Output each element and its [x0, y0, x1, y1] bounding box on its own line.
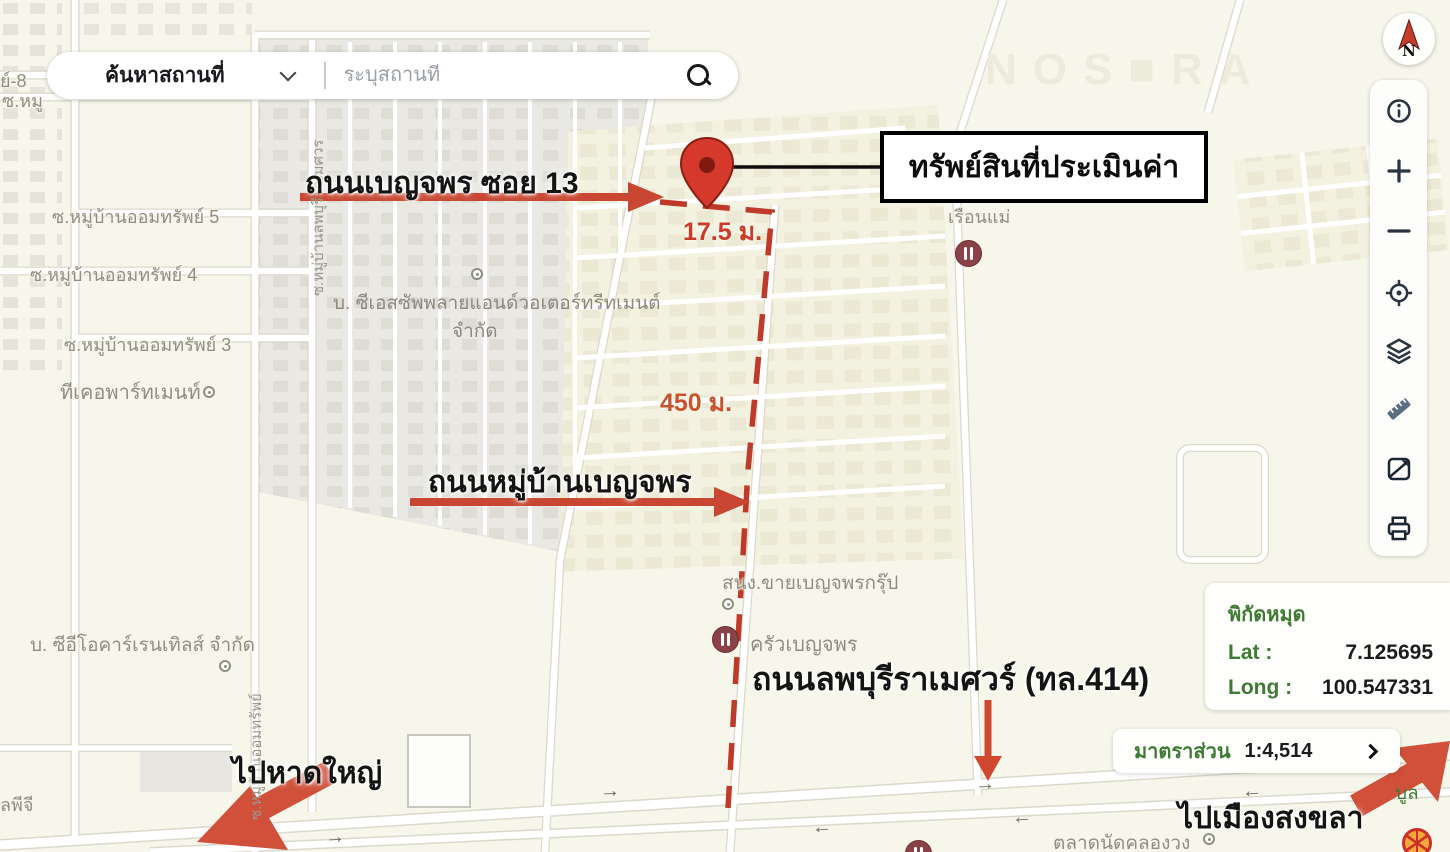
map-label-soi-omsap5: ซ.หมู่บ้านออมทรัพย์ 5: [52, 202, 219, 231]
coordinates-title: พิกัดหมุด: [1228, 598, 1450, 630]
info-icon: [1385, 97, 1413, 125]
map-blocks-topleft: [82, 0, 252, 42]
map-label-cs-supply: บ. ซีเอสซัพพลายแอนด์วอเตอร์ทรีทเมนต์: [333, 288, 661, 318]
nostra-watermark: NOS■RA: [985, 45, 1266, 95]
oneway-arrow-icon: [974, 772, 995, 796]
oneway-arrow-icon: [1011, 805, 1032, 829]
map-label-soi-omsap3: ซ.หมู่บ้านออมทรัพย์ 3: [64, 330, 231, 359]
annotation-distance-17-5: 17.5 ม.: [683, 212, 762, 252]
gas-station-icon: [1402, 828, 1432, 852]
layers-icon: [1384, 336, 1414, 366]
annotation-to-hatyai: ไปหาดใหญ่: [232, 750, 382, 797]
long-value: 100.547331: [1322, 676, 1433, 700]
info-button[interactable]: [1382, 94, 1416, 128]
map-label-partial-lpg: ลพีจี: [0, 790, 33, 819]
building-small: [140, 752, 232, 792]
chevron-down-icon[interactable]: [279, 64, 296, 81]
lat-label: Lat :: [1228, 641, 1272, 665]
annotation-road-highway: ถนนลพบุรีราเมศวร์ (ทล.414): [752, 654, 1149, 705]
map-blocks-left: [0, 0, 62, 370]
lat-row: Lat : 7.125695: [1228, 641, 1433, 665]
annotation-distance-450: 450 ม.: [660, 383, 732, 423]
minus-icon: [1384, 216, 1414, 246]
coordinates-panel: พิกัดหมุด Lat : 7.125695 Long : 100.5473…: [1205, 583, 1450, 710]
oneway-arrow-icon: [599, 779, 620, 803]
long-label: Long :: [1228, 676, 1292, 700]
ruler-icon: [1383, 393, 1415, 425]
search-category-dropdown[interactable]: ค้นหาสถานที่: [105, 59, 225, 92]
plus-icon: [1384, 156, 1414, 186]
annotation-road-village: ถนนหมู่บ้านเบญจพร: [428, 459, 691, 506]
map-label-ruen-mae: เรือนแม่: [948, 202, 1010, 231]
search-divider: [324, 62, 326, 89]
map-canvas[interactable]: [0, 0, 1450, 852]
crosshair-icon: [1384, 278, 1414, 308]
property-callout-box: ทรัพย์สินที่ประเมินค่า: [880, 131, 1208, 203]
basemap-button[interactable]: [1382, 452, 1416, 486]
map-label-soi-omsap4: ซ.หมู่บ้านออมทรัพย์ 4: [30, 260, 197, 289]
chevron-right-icon[interactable]: [1363, 743, 1379, 759]
scale-value: 1:4,514: [1244, 740, 1312, 763]
annotation-road-soi13: ถนนเบญจพร ซอย 13: [305, 160, 579, 207]
compass-north-letter: N: [1402, 42, 1416, 60]
basemap-icon: [1384, 454, 1414, 484]
scale-label: มาตราส่วน: [1134, 735, 1230, 767]
map-label-partial-green: บูล: [1395, 778, 1419, 808]
map-label-tk-apartment: ทีเคอพาร์ทเมนท์: [60, 376, 201, 408]
map-viewport: ย์-8 ซ.หมู ซ.หมู่บ้านออมทรัพย์ 5 ซ.หมู่บ…: [0, 0, 1450, 852]
oneway-arrow-icon: [811, 815, 832, 839]
building-large: [408, 735, 470, 807]
restaurant-icon-krua: [712, 626, 739, 653]
map-label-benjaporn-office: สนง.ขายเบญจพรกรุ๊ป: [722, 568, 898, 598]
map-label-cs-supply-2: จำกัด: [452, 316, 498, 346]
oneway-arrow-icon: [324, 825, 345, 849]
long-row: Long : 100.547331: [1228, 676, 1433, 700]
map-label-partial-soi: ซ.หมู: [2, 86, 43, 115]
scale-bar: มาตราส่วน 1:4,514: [1113, 729, 1400, 773]
poi-dot-ceo-car-rentals: [219, 660, 231, 672]
annotation-to-songkhla: ไปเมืองสงขลา: [1178, 795, 1364, 842]
printer-icon: [1384, 514, 1414, 544]
poi-dot-cs-supply: [471, 268, 483, 280]
search-bar: ค้นหาสถานที่: [47, 52, 738, 99]
compass-button[interactable]: N: [1383, 13, 1435, 65]
lat-value: 7.125695: [1345, 641, 1433, 665]
search-icon[interactable]: [686, 63, 712, 89]
map-label-market: ตลาดนัดคลองวง: [1053, 828, 1190, 852]
poi-dot-benjaporn-office: [722, 598, 734, 610]
restaurant-icon-ruen-mae: [955, 240, 982, 267]
map-label-ceo-car-rentals: บ. ซีอีโอคาร์เรนเทิลส์ จำกัด: [30, 630, 255, 660]
locate-button[interactable]: [1382, 276, 1416, 310]
zoom-in-button[interactable]: [1382, 154, 1416, 188]
measure-button[interactable]: [1382, 392, 1416, 426]
poi-dot-tk-apartment: [203, 386, 215, 398]
print-button[interactable]: [1382, 512, 1416, 546]
layers-button[interactable]: [1382, 334, 1416, 368]
zoom-out-button[interactable]: [1382, 214, 1416, 248]
search-input[interactable]: [344, 64, 624, 87]
map-toolbar: [1370, 80, 1427, 556]
